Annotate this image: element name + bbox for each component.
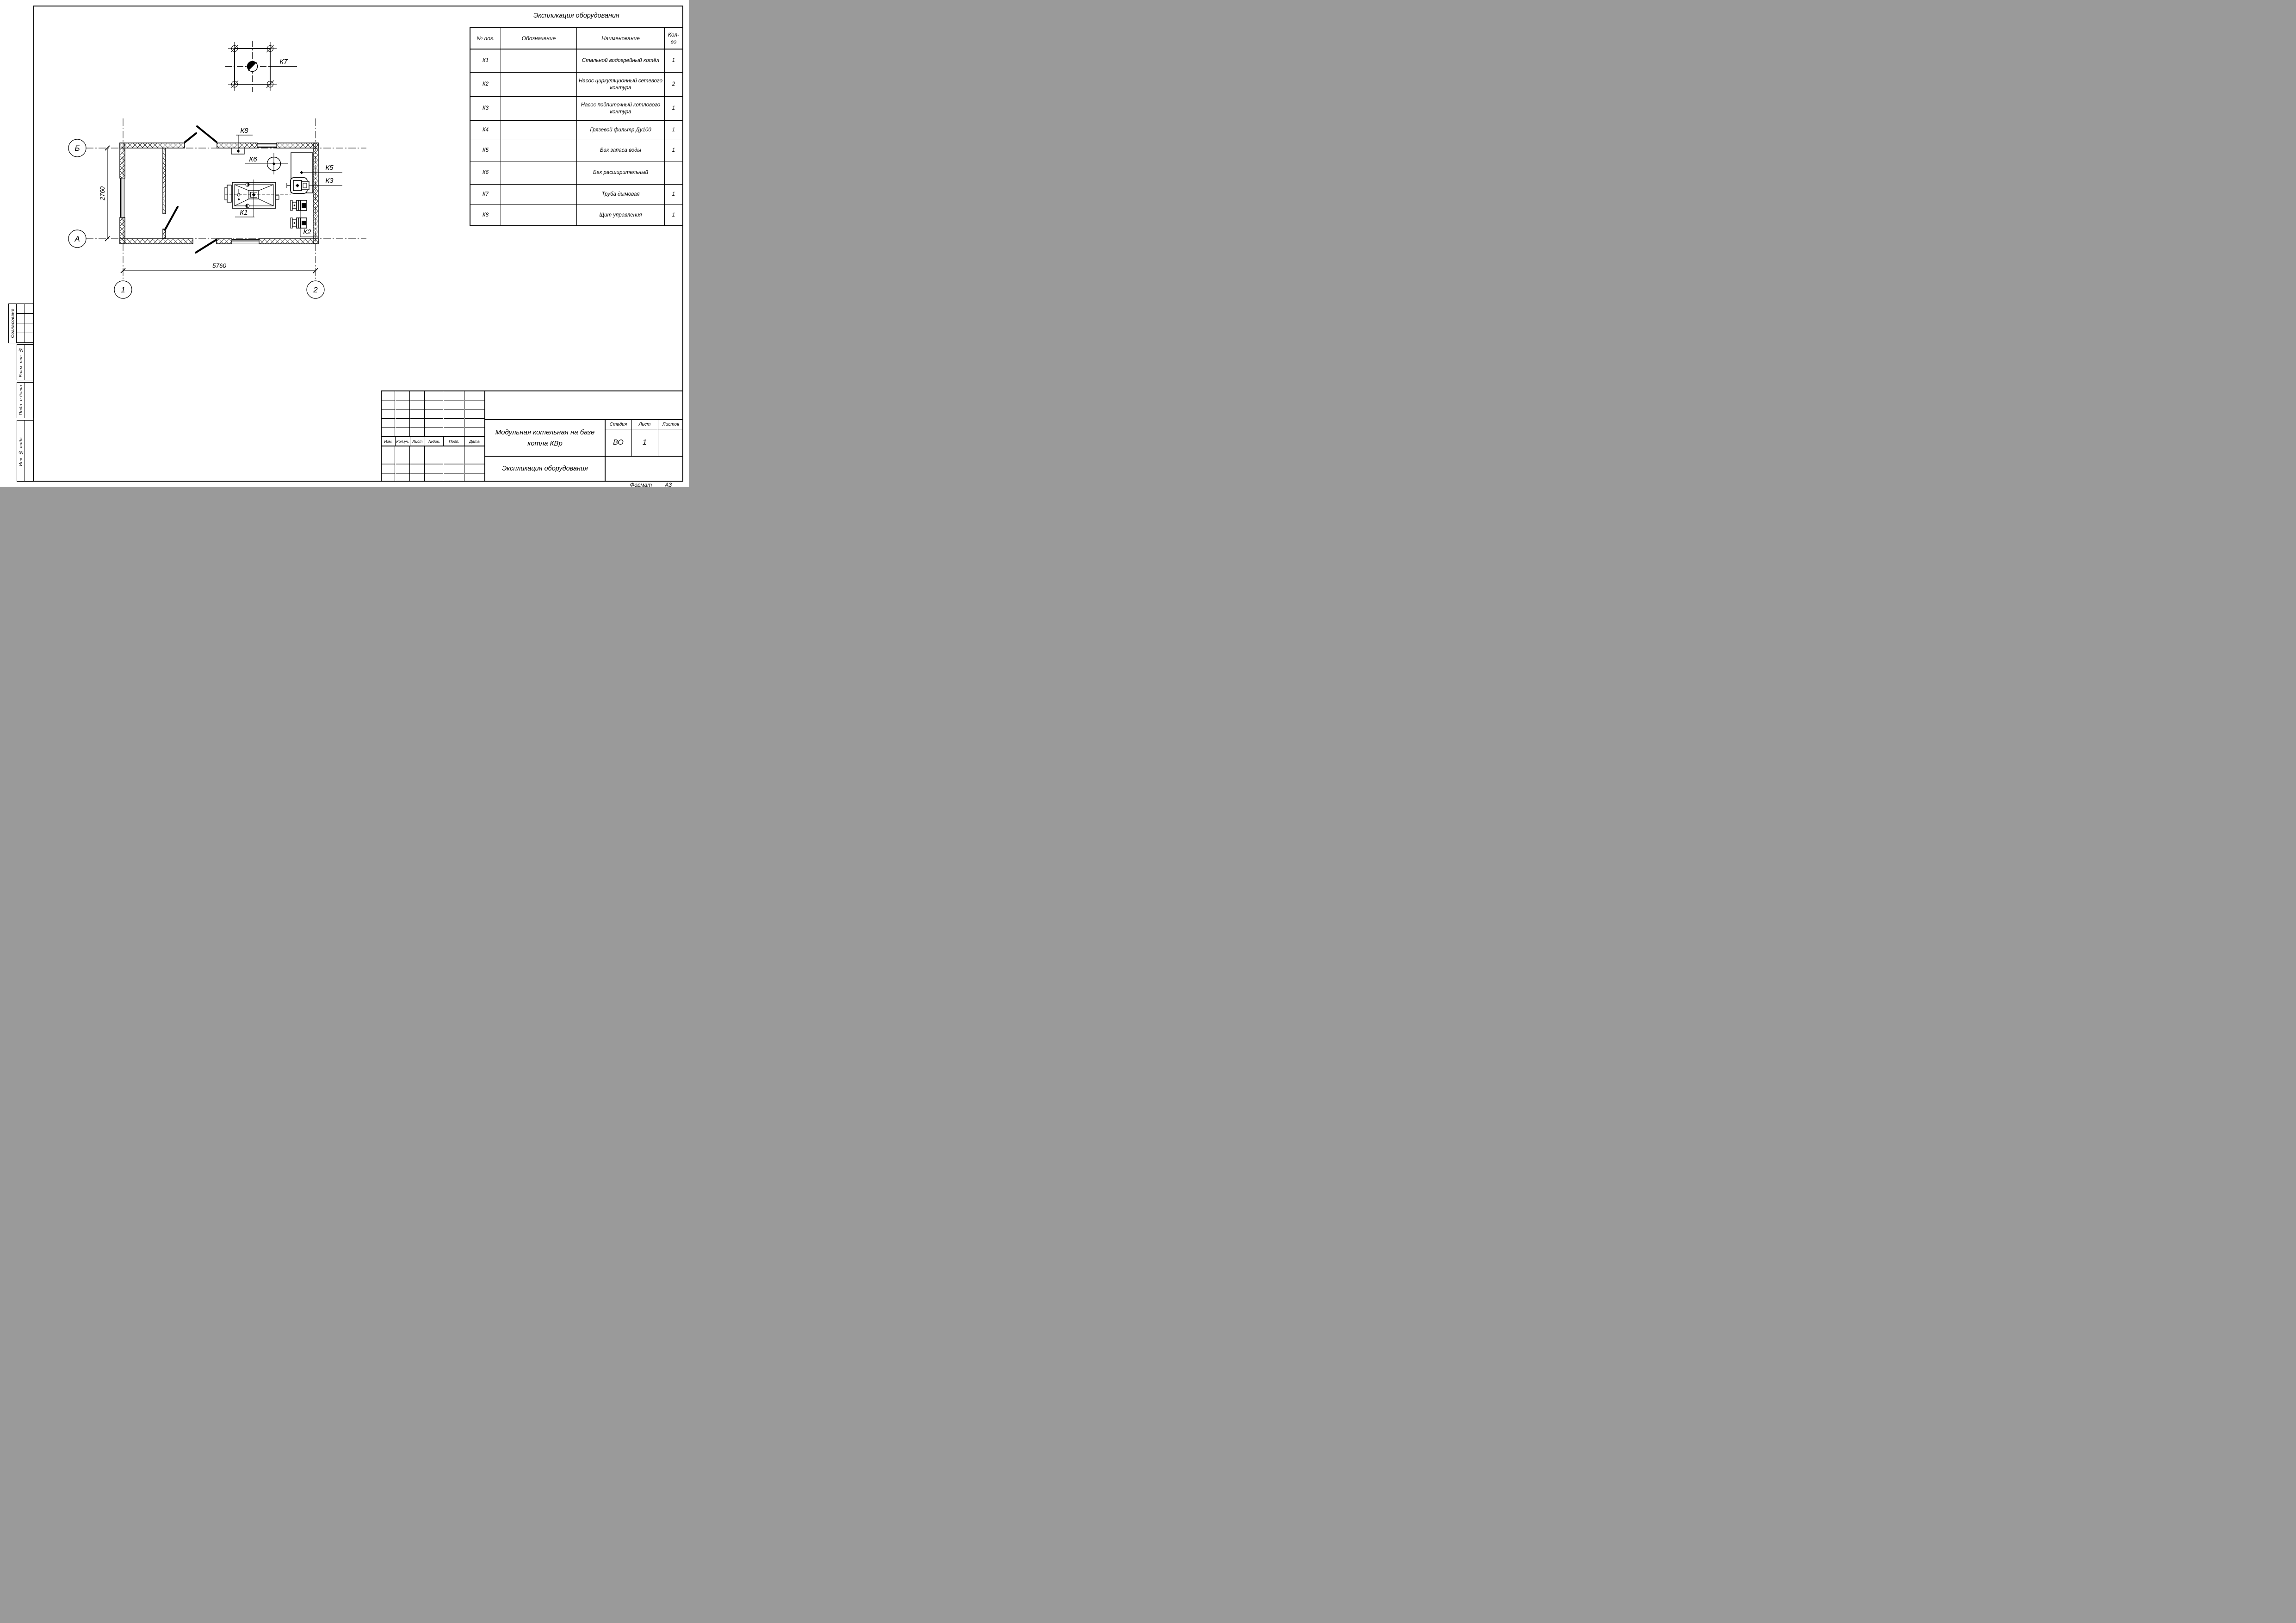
rev-hdr-data: Дата bbox=[465, 437, 484, 446]
approval-stamp: Согласовано bbox=[8, 304, 33, 343]
sign-date-label: Подп. и дата bbox=[19, 385, 24, 415]
row-qty: 1 bbox=[665, 121, 682, 140]
table-row: К6 Бак расширительный bbox=[470, 161, 682, 185]
row-qty: 1 bbox=[665, 140, 682, 161]
approval-stamp-grid bbox=[25, 304, 33, 343]
project-title: Модульная котельная на базе котла КВр bbox=[487, 421, 603, 455]
row-designation bbox=[501, 97, 577, 120]
revision-header-row: Изм. Кол.уч. Лист №док. Подп. Дата bbox=[382, 436, 484, 446]
walls bbox=[120, 143, 318, 244]
row-designation bbox=[501, 205, 577, 225]
row-name: Бак расширительный bbox=[577, 161, 665, 184]
row-designation bbox=[501, 185, 577, 204]
table-row: К5 Бак запаса воды 1 bbox=[470, 140, 682, 161]
table-row: К3 Насос подпиточный котлового контура 1 bbox=[470, 97, 682, 121]
row-pos: К2 bbox=[470, 73, 501, 96]
row-designation bbox=[501, 161, 577, 184]
table-row: К4 Грязевой фильтр Ду100 1 bbox=[470, 121, 682, 140]
table-row: К8 Щит управления 1 bbox=[470, 205, 682, 225]
axis-label-1: 1 bbox=[121, 285, 125, 294]
pump-icon bbox=[291, 218, 307, 228]
col-header-designation: Обозначение bbox=[501, 28, 577, 49]
inv-orig-label: Инв. № подл. bbox=[19, 436, 24, 466]
axis-label-b: Б bbox=[74, 144, 80, 153]
row-name: Грязевой фильтр Ду100 bbox=[577, 121, 665, 140]
divider bbox=[484, 391, 485, 481]
axis-label-2: 2 bbox=[313, 285, 318, 294]
row-name: Насос подпиточный котлового контура bbox=[577, 97, 665, 120]
format-label: Формат bbox=[630, 482, 652, 487]
row-designation bbox=[501, 73, 577, 96]
pump-icon bbox=[291, 200, 307, 211]
row-name: Труба дымовая bbox=[577, 185, 665, 204]
replace-inv-label: Взам. инв. № bbox=[19, 347, 24, 377]
rev-hdr-dok: №док. bbox=[425, 437, 444, 446]
row-pos: К5 bbox=[470, 140, 501, 161]
table-row: К2 Насос циркуляционный сетевого контура… bbox=[470, 73, 682, 97]
label-k3: К3 bbox=[325, 177, 334, 185]
sheet-title: Экспликация оборудования bbox=[487, 457, 603, 481]
row-name: Стальной водогрейный котёл bbox=[577, 50, 665, 72]
approval-stamp-grid bbox=[17, 304, 25, 343]
row-qty: 1 bbox=[665, 97, 682, 120]
table-row: К7 Труба дымовая 1 bbox=[470, 185, 682, 205]
replace-inv-stamp: Взам. инв. № bbox=[17, 344, 33, 380]
label-k2: К2 bbox=[303, 228, 311, 236]
label-k5: К5 bbox=[325, 164, 334, 172]
col-header-pos: № поз. bbox=[470, 28, 501, 49]
dim-height-text: 2760 bbox=[99, 186, 106, 201]
equipment-table-title: Экспликация оборудования bbox=[470, 12, 683, 19]
drawing-sheet: 2760 5760 Б А 1 2 bbox=[0, 0, 689, 487]
table-row: К1 Стальной водогрейный котёл 1 bbox=[470, 50, 682, 73]
format-value: А3 bbox=[665, 482, 672, 487]
row-qty: 1 bbox=[665, 205, 682, 225]
axis-label-a: А bbox=[74, 235, 80, 243]
row-qty bbox=[665, 161, 682, 184]
sheet-value: 1 bbox=[632, 429, 657, 456]
row-qty: 1 bbox=[665, 185, 682, 204]
row-designation bbox=[501, 121, 577, 140]
row-pos: К6 bbox=[470, 161, 501, 184]
rev-hdr-izm: Изм. bbox=[382, 437, 396, 446]
sheets-label: Листов bbox=[658, 420, 683, 429]
rev-hdr-podp: Подп. bbox=[444, 437, 465, 446]
axis-markers bbox=[68, 139, 324, 298]
row-pos: К3 bbox=[470, 97, 501, 120]
label-k1: К1 bbox=[240, 209, 248, 217]
label-k7: К7 bbox=[279, 58, 288, 66]
title-block: Изм. Кол.уч. Лист №док. Подп. Дата Модул… bbox=[381, 390, 683, 482]
format-note: ФорматА3 bbox=[532, 482, 680, 487]
row-qty: 2 bbox=[665, 73, 682, 96]
sheets-value bbox=[658, 429, 683, 456]
row-name: Бак запаса воды bbox=[577, 140, 665, 161]
row-name: Щит управления bbox=[577, 205, 665, 225]
equipment-table-header: № поз. Обозначение Наименование Кол-во bbox=[470, 28, 682, 50]
row-pos: К4 bbox=[470, 121, 501, 140]
chimney-detail-k7 bbox=[225, 41, 297, 92]
row-pos: К8 bbox=[470, 205, 501, 225]
label-k8: К8 bbox=[240, 127, 248, 135]
rev-hdr-koluch: Кол.уч. bbox=[396, 437, 410, 446]
stage-label: Стадия bbox=[606, 420, 631, 429]
equipment-table: № поз. Обозначение Наименование Кол-во К… bbox=[470, 27, 683, 226]
inv-orig-stamp: Инв. № подл. bbox=[17, 420, 33, 482]
row-name: Насос циркуляционный сетевого контура bbox=[577, 73, 665, 96]
sheet-label: Лист bbox=[632, 420, 657, 429]
label-k6: К6 bbox=[249, 155, 257, 163]
row-pos: К1 bbox=[470, 50, 501, 72]
stage-value: ВО bbox=[606, 429, 631, 456]
rev-hdr-list: Лист bbox=[410, 437, 425, 446]
approval-stamp-label: Согласовано bbox=[10, 309, 15, 338]
row-qty: 1 bbox=[665, 50, 682, 72]
col-header-qty: Кол-во bbox=[665, 28, 682, 49]
dim-width-text: 5760 bbox=[212, 262, 227, 269]
org-cell bbox=[606, 457, 683, 481]
row-designation bbox=[501, 140, 577, 161]
row-designation bbox=[501, 50, 577, 72]
boiler-k1 bbox=[225, 180, 291, 217]
col-header-name: Наименование bbox=[577, 28, 665, 49]
sign-date-stamp: Подп. и дата bbox=[17, 382, 33, 418]
row-pos: К7 bbox=[470, 185, 501, 204]
